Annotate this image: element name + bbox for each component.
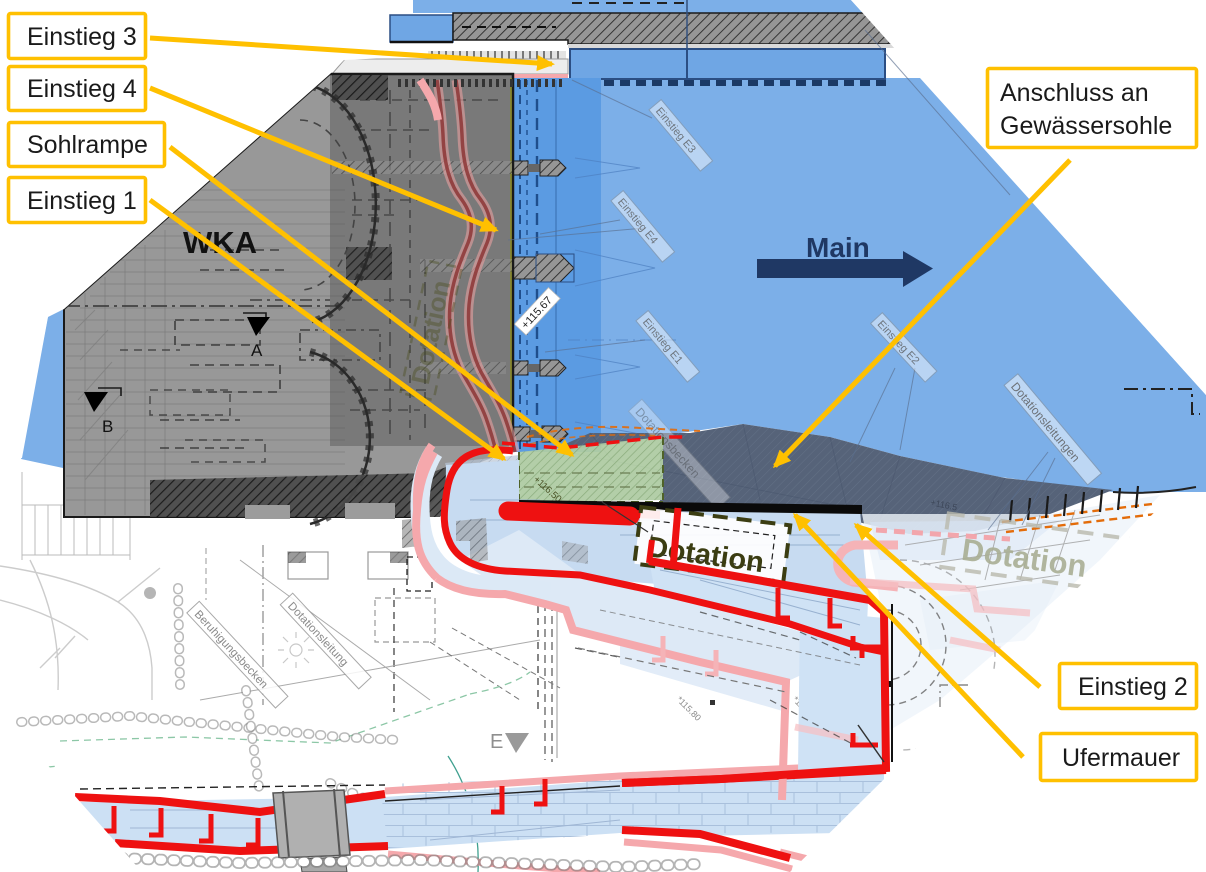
svg-text:E: E bbox=[490, 731, 503, 753]
svg-text:Main: Main bbox=[806, 232, 870, 263]
svg-text:Einstieg 2: Einstieg 2 bbox=[1078, 673, 1188, 701]
svg-text:Sohlrampe: Sohlrampe bbox=[27, 131, 148, 159]
svg-text:Gewässersohle: Gewässersohle bbox=[1000, 112, 1172, 140]
svg-text:B: B bbox=[102, 417, 113, 436]
svg-text:Anschluss an: Anschluss an bbox=[1000, 79, 1149, 107]
svg-text:Einstieg 3: Einstieg 3 bbox=[27, 23, 137, 51]
svg-text:A: A bbox=[251, 341, 263, 360]
svg-text:Ufermauer: Ufermauer bbox=[1062, 744, 1180, 772]
svg-text:Einstieg 1: Einstieg 1 bbox=[27, 187, 137, 215]
svg-text:Einstieg 4: Einstieg 4 bbox=[27, 75, 137, 103]
